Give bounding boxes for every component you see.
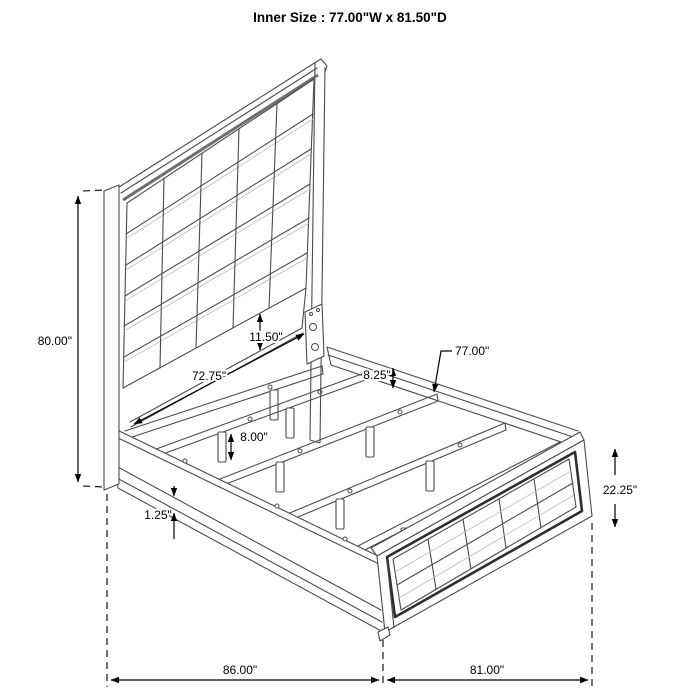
overall-width-label: 81.00" — [470, 663, 504, 677]
rail-lip-label: 1.25" — [144, 508, 172, 522]
dim-panel-gap: 11.50" — [249, 314, 282, 350]
dim-rail-drop: 8.25" — [363, 368, 393, 388]
footboard — [371, 432, 592, 641]
support-leg — [366, 427, 374, 457]
page-title: Inner Size : 77.00"W x 81.50"D — [253, 10, 447, 25]
rail-drop-label: 8.25" — [363, 368, 391, 382]
dim-footboard-height: 22.25" — [603, 449, 637, 527]
footboard-height-label: 22.25" — [603, 483, 637, 497]
support-leg — [218, 432, 226, 462]
headboard-tufted-panel — [123, 79, 314, 388]
dim-headboard-height: 80.00" — [38, 190, 105, 487]
support-leg — [286, 408, 294, 438]
near-side-rail — [113, 428, 385, 633]
support-leg — [276, 462, 284, 492]
headboard-width-label: 72.75" — [192, 369, 226, 383]
slat-length-label: 77.00" — [455, 344, 489, 358]
diagram-canvas: 80.00" 11.50" 72.75" 8.25" 77.00" 8.00" … — [0, 0, 700, 700]
dim-leg-height: 8.00" — [231, 430, 268, 460]
panel-gap-label: 11.50" — [249, 330, 282, 344]
dim-slat-length: 77.00" — [434, 344, 489, 392]
support-leg — [336, 499, 344, 529]
headboard-left-post — [104, 185, 119, 490]
rail-bracket — [305, 304, 324, 364]
leg-height-label: 8.00" — [240, 430, 268, 444]
far-side-rail — [327, 347, 582, 449]
support-leg — [426, 461, 434, 491]
headboard-height-label: 80.00" — [38, 334, 72, 348]
overall-depth-label: 86.00" — [223, 663, 257, 677]
bed-dimension-diagram: 80.00" 11.50" 72.75" 8.25" 77.00" 8.00" … — [0, 0, 700, 700]
